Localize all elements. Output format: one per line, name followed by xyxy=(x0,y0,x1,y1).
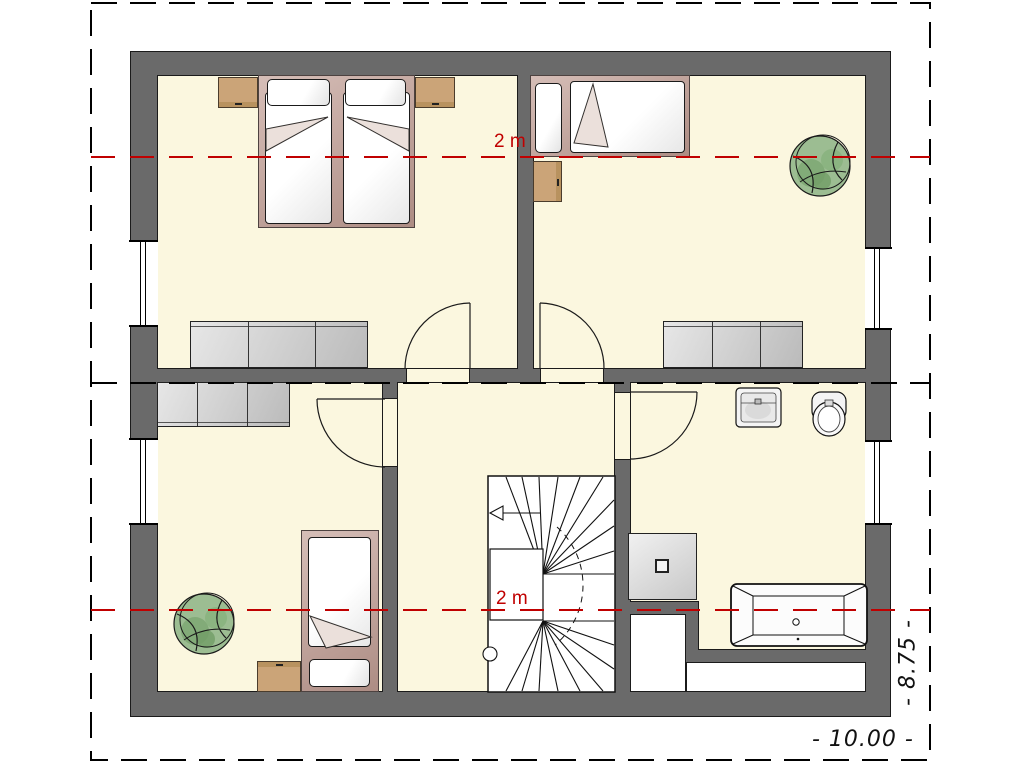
dimension-label-right: - 8.75 - xyxy=(896,598,921,728)
single-bed-top-mattress xyxy=(570,81,685,153)
door-opening-room-bottom-left xyxy=(383,398,397,467)
headroom-label-top: 2 m xyxy=(494,131,526,153)
void-recess-bottom xyxy=(686,662,866,692)
shower-icon xyxy=(628,533,697,600)
double-bed-pillow-left xyxy=(267,79,330,106)
double-bed-pillow-right xyxy=(345,79,406,106)
nightstand-left xyxy=(218,77,258,108)
void-recess-left xyxy=(630,614,686,692)
window-right-lower xyxy=(865,440,892,525)
double-bed-mattress-left xyxy=(265,92,332,224)
nightstand-bottom-left-room xyxy=(257,661,301,692)
nightstand-right xyxy=(415,77,455,108)
double-bed-mattress-right xyxy=(343,92,410,224)
door-opening-bedroom-left xyxy=(406,369,470,382)
wardrobe-top-right-room xyxy=(663,321,803,368)
window-left-upper xyxy=(129,240,158,327)
single-bed-bottom-pillow xyxy=(309,659,370,687)
wardrobe-bottom-left-room xyxy=(157,382,290,427)
wardrobe-top-left-room xyxy=(190,321,368,368)
headroom-label-bottom: 2 m xyxy=(496,588,528,610)
dimension-label-bottom: - 10.00 - xyxy=(812,727,914,752)
window-right-upper xyxy=(865,247,892,330)
door-opening-bathroom xyxy=(615,392,630,460)
single-bed-bottom-mattress xyxy=(308,537,371,647)
window-left-lower xyxy=(129,438,158,525)
single-bed-top-pillow xyxy=(535,83,562,153)
door-opening-bedroom-right xyxy=(540,369,604,382)
floor-plan-canvas: 2 m 2 m - 8.75 - - 10.00 - xyxy=(0,0,1024,768)
nightstand-top-right-room xyxy=(533,161,562,202)
hallway-floor xyxy=(397,382,615,692)
bathtub-alcove-floor xyxy=(698,601,866,650)
